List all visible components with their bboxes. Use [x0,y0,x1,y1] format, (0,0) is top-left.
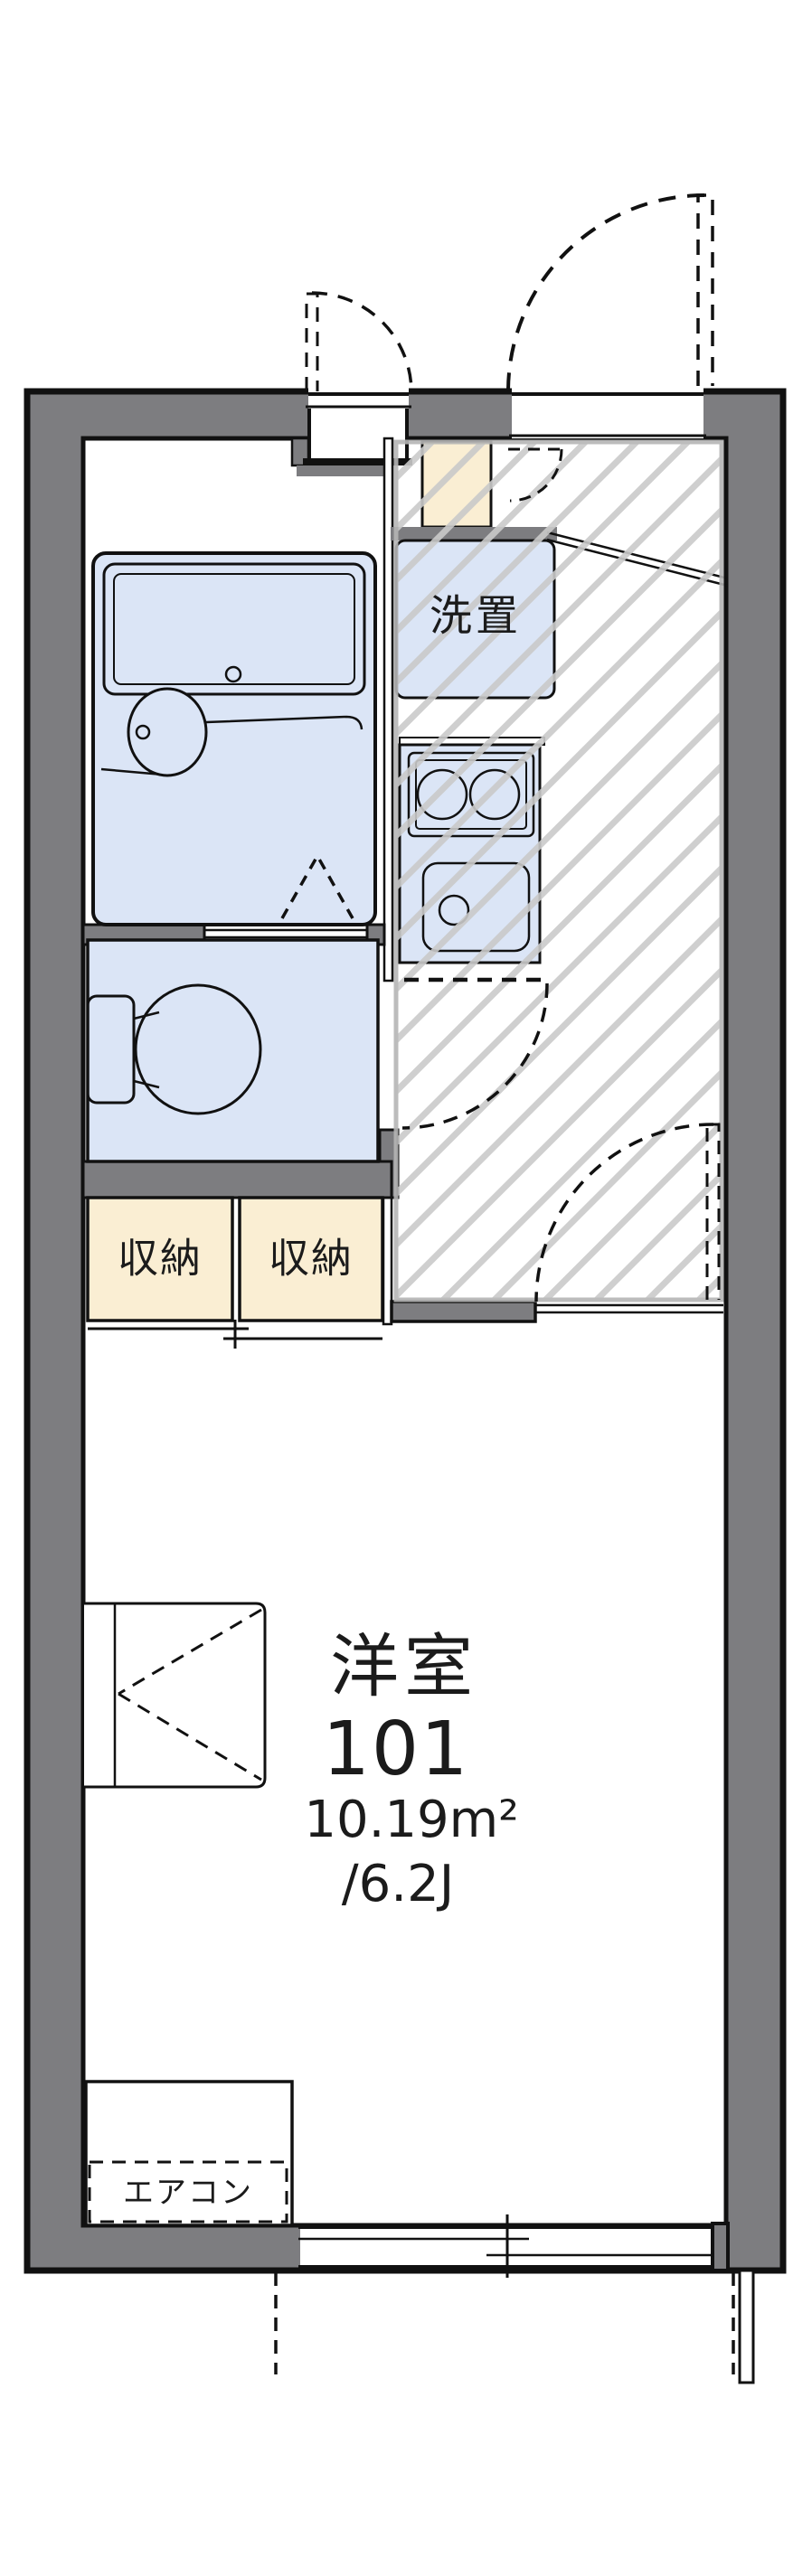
storage-right-label: 収納 [269,1238,354,1279]
wash-basin [128,689,206,776]
room-area-tatami-label: /6.2J [342,1859,454,1910]
aircon-label: エアコン [123,2177,253,2208]
room-area-sqm-label: 10.19m² [304,1795,518,1846]
service-door-swing [307,293,411,392]
toilet-room [88,940,378,1161]
washer-space-label: 洗置 [430,596,522,638]
hatched-floor [394,440,723,1302]
floor-plan-drawing [0,0,812,2576]
bathroom-unit [93,553,375,925]
built-in-desk [84,1603,265,1787]
wall-corner-patch [713,2223,728,2270]
room-number-label: 101 [323,1713,470,1787]
storage-left-label: 収納 [118,1238,203,1279]
entrance-door-swing [508,195,713,391]
exterior-marks [276,2270,753,2383]
floor-plan: 洗置 収納 収納 洋室 101 10.19m² /6.2J エアコン [0,0,812,2576]
storage-sliding-doors [88,1320,382,1349]
room-type-label: 洋室 [330,1632,478,1701]
